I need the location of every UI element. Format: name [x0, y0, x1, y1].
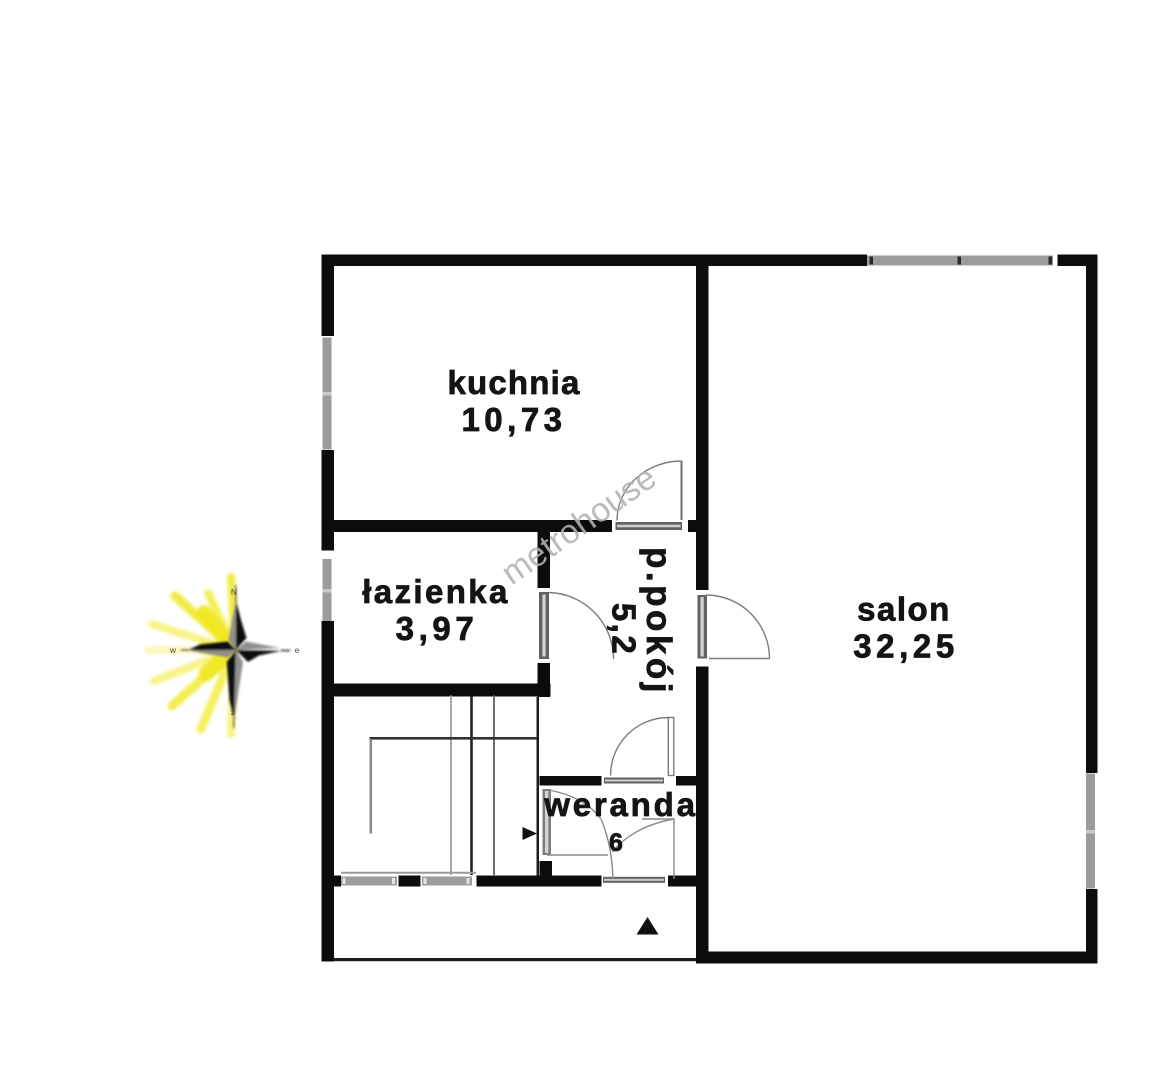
svg-text:z: z — [231, 707, 235, 717]
svg-text:6: 6 — [609, 829, 623, 857]
svg-text:3,97: 3,97 — [396, 610, 479, 647]
svg-text:32,25: 32,25 — [853, 628, 959, 665]
svg-text:w: w — [169, 645, 177, 655]
svg-text:N: N — [231, 587, 237, 597]
svg-text:łazienka: łazienka — [362, 573, 510, 610]
svg-text:salon: salon — [857, 591, 951, 628]
svg-text:weranda: weranda — [543, 786, 698, 823]
svg-text:kuchnia: kuchnia — [447, 364, 580, 401]
svg-text:e: e — [295, 645, 300, 655]
svg-text:10,73: 10,73 — [461, 401, 566, 438]
svg-text:5,2: 5,2 — [606, 603, 643, 656]
svg-text:p.pokój: p.pokój — [639, 547, 678, 696]
